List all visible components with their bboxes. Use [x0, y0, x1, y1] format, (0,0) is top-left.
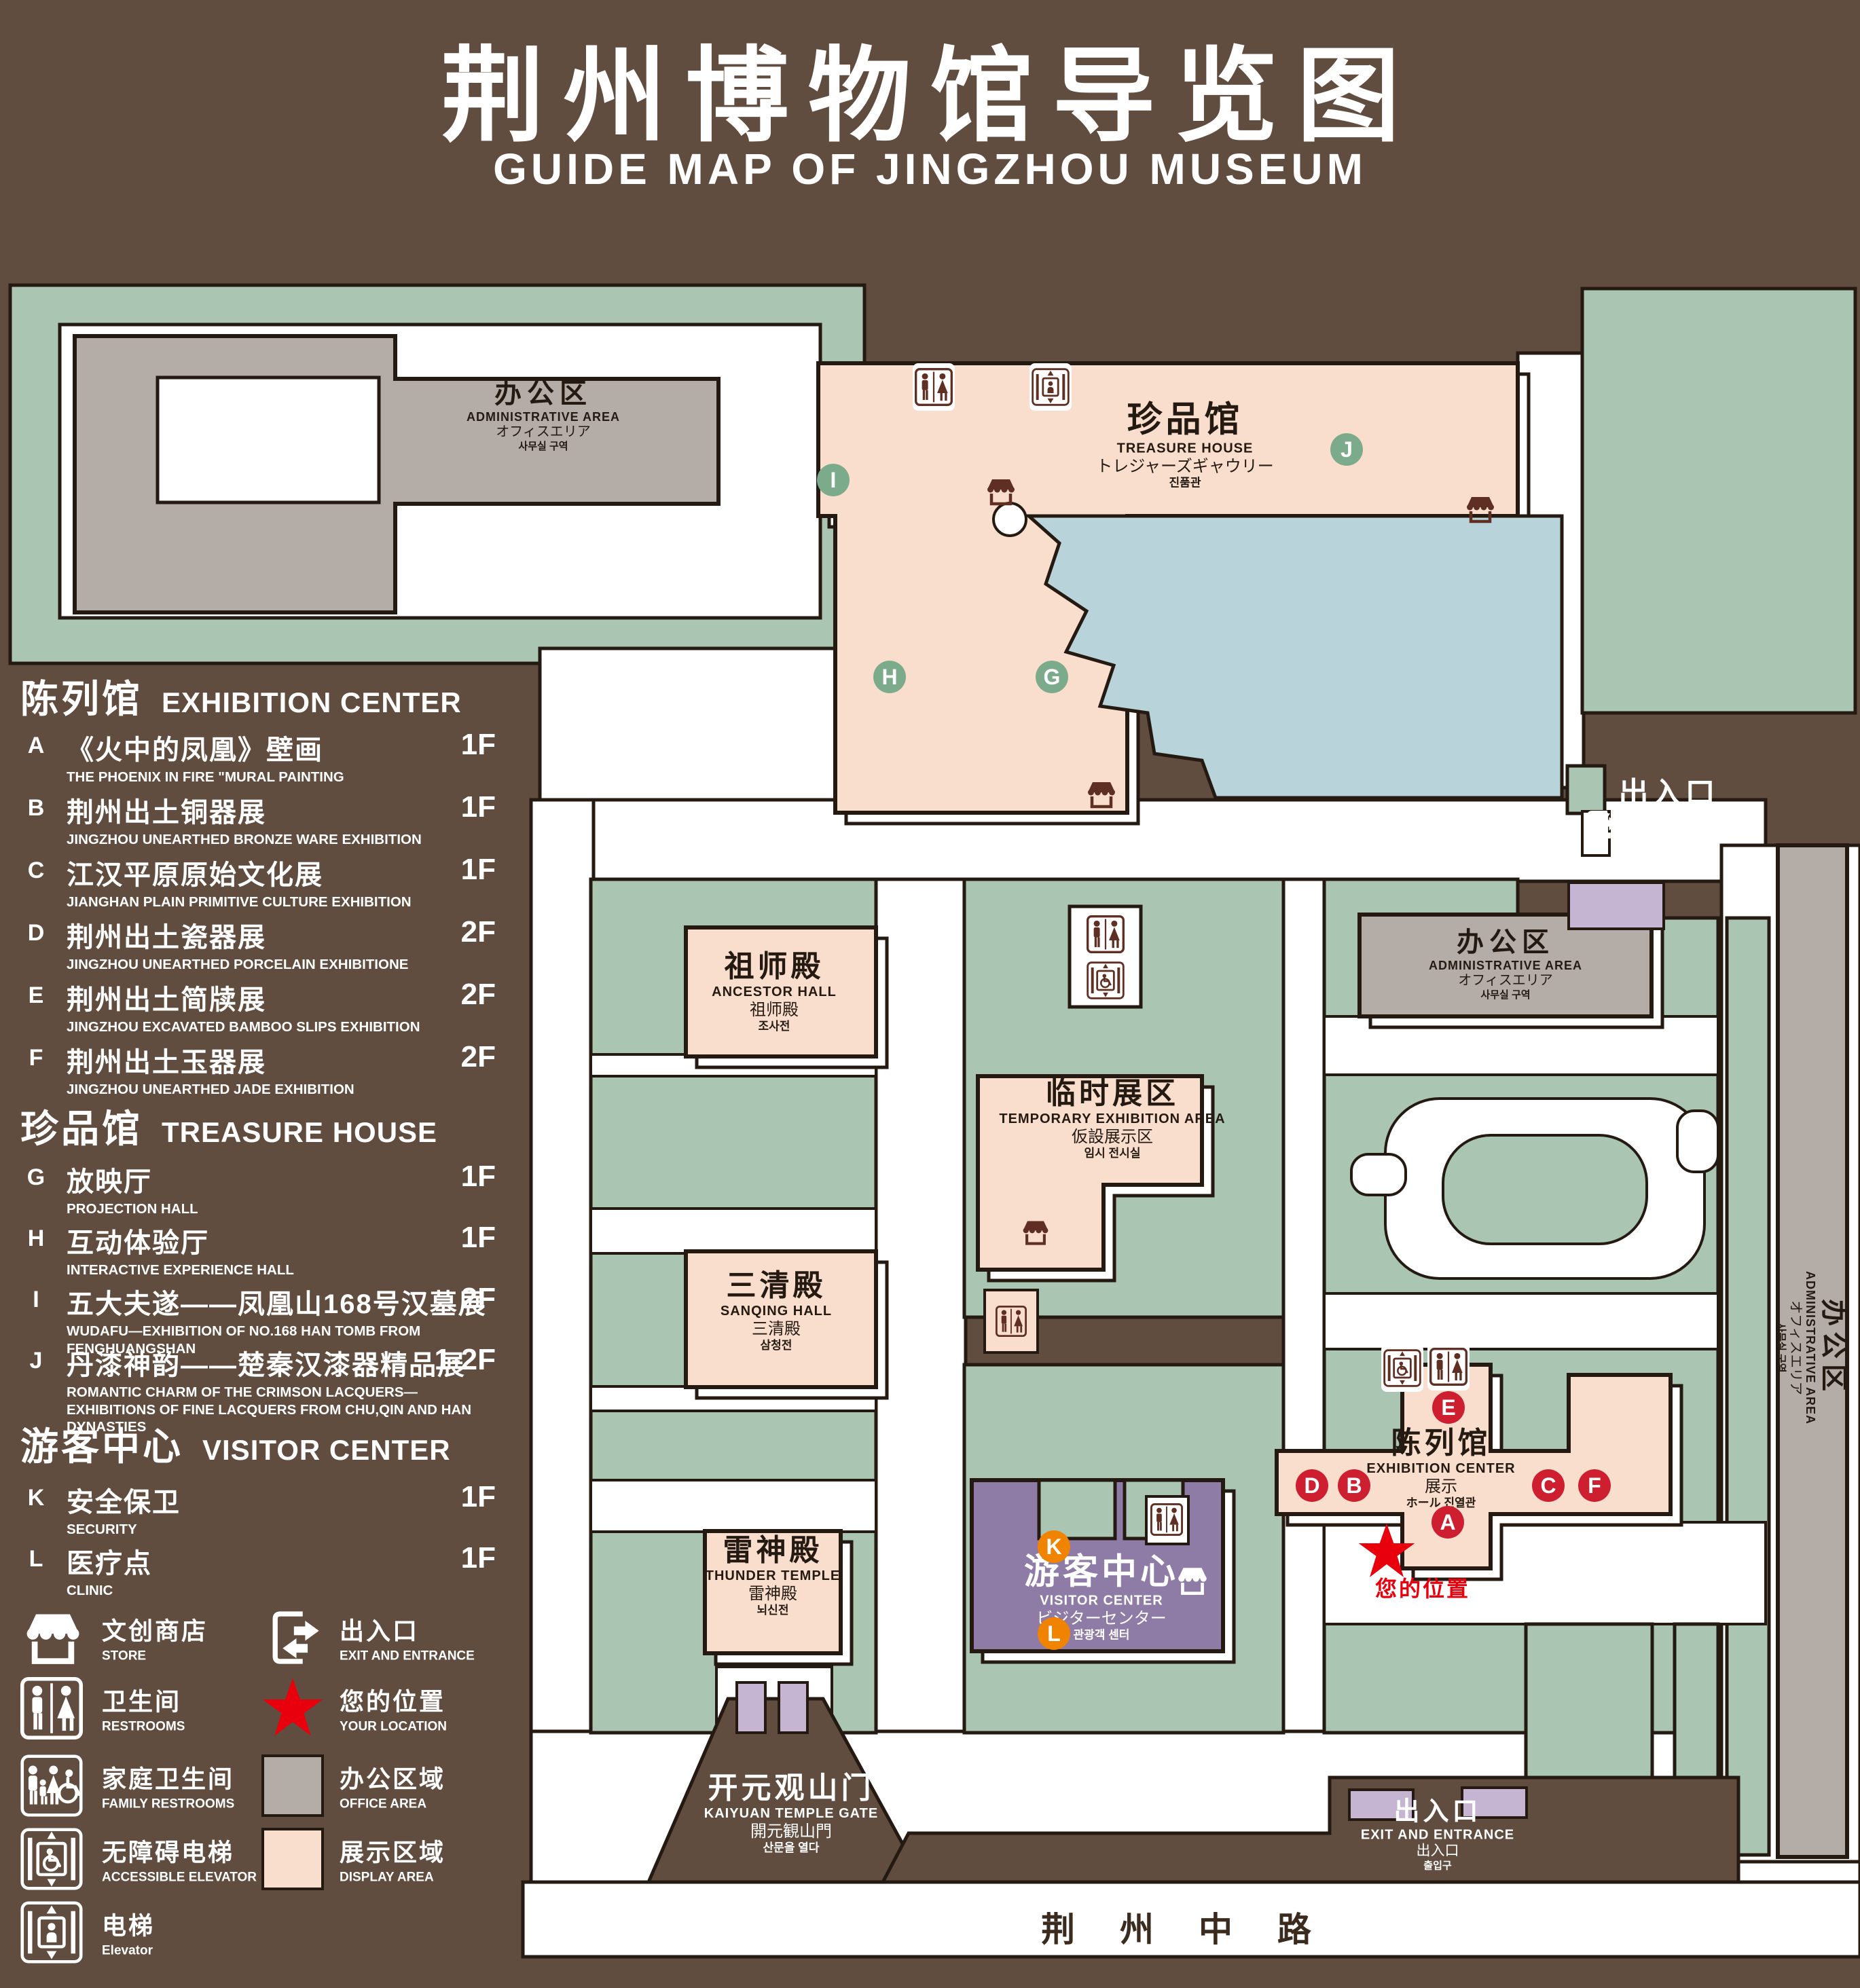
legend-item-b: B荆州出土铜器展JINGZHOU UNEARTHED BRONZE WARE E…: [20, 790, 496, 849]
store-icon: [1019, 1217, 1053, 1248]
gate-building: [779, 1682, 807, 1733]
symbol-title-cn: 无障碍电梯: [102, 1833, 257, 1869]
legend-item-title: 丹漆神韵——楚秦汉漆器精品展: [67, 1343, 496, 1382]
legend-item-subtitle: CLINIC: [67, 1582, 474, 1600]
restroom-icon: [1087, 914, 1125, 955]
label-temporary-exhibition: 临时展区TEMPORARY EXHIBITION AREA 仮設展示区임시 전시…: [999, 1076, 1225, 1160]
legend-item-e: E荆州出土简牍展JINGZHOU EXCAVATED BAMBOO SLIPS …: [20, 978, 496, 1036]
store-icon: [20, 1605, 86, 1670]
store-icon: [1462, 492, 1499, 526]
legend-symbol-label: 展示区域DISPLAY AREA: [340, 1833, 445, 1885]
exit-icon: [1579, 807, 1622, 849]
restroom-icon: [1427, 1343, 1470, 1391]
legend-item-subtitle: JINGZHOU EXCAVATED BAMBOO SLIPS EXHIBITI…: [67, 1018, 474, 1036]
symbol-title-cn: 文创商店: [102, 1612, 208, 1647]
legend-badge-g: G: [20, 1160, 52, 1195]
legend-item-h: H互动体验厅INTERACTIVE EXPERIENCE HALL1F: [20, 1221, 496, 1279]
legend-item-c: C江汉平原原始文化展JIANGHAN PLAIN PRIMITIVE CULTU…: [20, 853, 496, 911]
legend-symbol-label: 您的位置YOUR LOCATION: [340, 1682, 447, 1735]
green-strip-east: [1727, 918, 1769, 1855]
legend-item-subtitle: JINGZHOU UNEARTHED BRONZE WARE EXHIBITIO…: [67, 831, 474, 849]
road-label: 荆 州 中 路: [1041, 1902, 1329, 1951]
legend-item-subtitle: SECURITY: [67, 1521, 474, 1539]
symbol-title-cn: 办公区域: [340, 1760, 445, 1795]
accessible-elevator-icon: [1381, 1344, 1423, 1392]
map-badge-d: D: [1296, 1469, 1328, 1502]
legend-item-title: 互动体验厅: [67, 1221, 496, 1260]
legend-item-floor: 2F: [461, 1040, 496, 1074]
restroom-icon: [913, 363, 955, 411]
legend-item-floor: 2F: [461, 978, 496, 1012]
legend-item-title: 放映厅: [67, 1160, 496, 1199]
location-star-icon: [1357, 1522, 1416, 1581]
legend-badge-f: F: [20, 1040, 52, 1075]
map-badge-e: E: [1432, 1391, 1465, 1424]
exit-icon: [261, 1606, 324, 1669]
symbol-title-en: Elevator: [102, 1944, 155, 1959]
legend-badge-i: I: [20, 1282, 52, 1317]
legend-item-title: 荆州出土瓷器展: [67, 915, 496, 955]
legend-badge-e: E: [20, 978, 52, 1013]
label-kaiyuan-gate: 开元观山门KAIYUAN TEMPLE GATE 開元観山門산문을 열다: [704, 1771, 878, 1855]
legend-item-subtitle: JINGZHOU UNEARTHED PORCELAIN EXHIBITIONE: [67, 956, 474, 974]
family-restroom-icon: [20, 1754, 83, 1817]
symbol-title-cn: 卫生间: [102, 1682, 185, 1718]
legend-item-title: 安全保卫: [67, 1480, 496, 1520]
elevator-icon: [1029, 363, 1072, 411]
label-exhibition-center: 陈列馆EXHIBITION CENTER 展示ホール 진열관: [1366, 1426, 1515, 1510]
legend-item-floor: 1F: [461, 1221, 496, 1255]
legend-item-title: 江汉平原原始文化展: [67, 853, 496, 892]
legend-item-l: L医疗点CLINIC1F: [20, 1541, 496, 1600]
legend-item-floor: 1F: [461, 853, 496, 887]
legend-badge-l: L: [20, 1541, 52, 1577]
path: [591, 1480, 876, 1532]
symbol-title-cn: 出入口: [340, 1612, 475, 1647]
map-badge-g: G: [1036, 661, 1068, 693]
legend-item-subtitle: JIANGHAN PLAIN PRIMITIVE CULTURE EXHIBIT…: [67, 894, 474, 911]
garden-path: [1677, 1111, 1718, 1172]
map-badge-j: J: [1330, 433, 1363, 466]
symbol-title-en: OFFICE AREA: [340, 1797, 445, 1812]
label-exit-south: 出入口EXIT AND ENTRANCE 出入口출입구: [1361, 1797, 1514, 1873]
label-ancestor-hall: 祖师殿ANCESTOR HALL 祖师殿조사전: [712, 949, 837, 1033]
legend-item-subtitle: PROJECTION HALL: [67, 1200, 474, 1218]
map-badge-f: F: [1578, 1469, 1611, 1502]
garden-island: [1443, 1135, 1647, 1244]
legend-item-title: 五大夫遂——凤凰山168号汉墓展: [67, 1282, 496, 1321]
symbol-title-en: FAMILY RESTROOMS: [102, 1797, 234, 1812]
legend-item-floor: 2F: [461, 915, 496, 949]
legend-item-title: 《火中的凤凰》壁画: [67, 728, 496, 767]
map-badge-a: A: [1432, 1506, 1464, 1539]
restroom-icon: [1150, 1501, 1183, 1539]
legend-symbol-label: 办公区域OFFICE AREA: [340, 1760, 445, 1812]
legend-badge-k: K: [20, 1480, 52, 1515]
symbol-title-en: DISPLAY AREA: [340, 1871, 445, 1885]
path: [1283, 879, 1326, 1738]
legend-badge-d: D: [20, 915, 52, 951]
legend-item-k: K安全保卫SECURITY1F: [20, 1480, 496, 1539]
label-thunder-temple: 雷神殿THUNDER TEMPLE 雷神殿뇌신전: [706, 1533, 840, 1617]
path: [1324, 1293, 1718, 1349]
symbol-title-en: ACCESSIBLE ELEVATOR: [102, 1871, 257, 1885]
gate-building: [737, 1682, 765, 1733]
map-badge-l: L: [1038, 1617, 1070, 1650]
legend-symbol-label: 文创商店STORE: [102, 1612, 208, 1664]
section-title-en: TREASURE HOUSE: [162, 1116, 437, 1148]
label-admin-east: 办公区ADMINISTRATIVE AREA オフィスエリア사무실 구역: [1774, 1271, 1849, 1424]
legend-item-floor: 1F: [461, 1160, 496, 1194]
section-title-cn: 游客中心: [20, 1425, 183, 1468]
map-badge-c: C: [1532, 1469, 1565, 1502]
symbol-title-en: RESTROOMS: [102, 1720, 185, 1735]
store-icon: [1083, 777, 1120, 811]
label-sanqing-hall: 三清殿SANQING HALL 三清殿삼청전: [721, 1268, 832, 1352]
symbol-title-cn: 您的位置: [340, 1682, 447, 1718]
display-area-swatch: [261, 1828, 324, 1890]
legend-item-floor: 2F: [461, 1282, 496, 1316]
legend-item-floor: 1-2F: [435, 1343, 496, 1377]
legend-item-title: 医疗点: [67, 1541, 496, 1581]
legend-item-subtitle: INTERACTIVE EXPERIENCE HALL: [67, 1262, 474, 1279]
label-admin-mid: 办公区ADMINISTRATIVE AREA オフィスエリア사무실 구역: [1429, 927, 1582, 1001]
path: [591, 1209, 876, 1253]
legend-item-title: 荆州出土铜器展: [67, 790, 496, 830]
legend-symbol-label: 家庭卫生间FAMILY RESTROOMS: [102, 1760, 234, 1812]
legend-badge-c: C: [20, 853, 52, 888]
symbol-title-cn: 电梯: [102, 1907, 155, 1942]
symbol-title-cn: 展示区域: [340, 1833, 445, 1869]
guide-map-poster: 荆州博物馆导览图 GUIDE MAP OF JINGZHOU MUSEUM: [0, 0, 1860, 1988]
location-star-icon: [261, 1677, 324, 1739]
map-badge-i: I: [817, 464, 850, 496]
garden-path: [1351, 1154, 1406, 1195]
green-notch: [1039, 1480, 1115, 1539]
store-icon: [1173, 1563, 1211, 1598]
path: [531, 800, 594, 1882]
legend-item-floor: 1F: [461, 790, 496, 824]
legend-item-title: 荆州出土简牍展: [67, 978, 496, 1017]
section-title-en: EXHIBITION CENTER: [162, 686, 462, 718]
legend-badge-j: J: [20, 1343, 52, 1378]
symbol-title-en: EXIT AND ENTRANCE: [340, 1649, 475, 1664]
legend-section-header: 珍品馆TREASURE HOUSE: [20, 1099, 437, 1154]
legend-symbol-label: 出入口EXIT AND ENTRANCE: [340, 1612, 475, 1664]
elevator-icon: [20, 1901, 83, 1964]
legend-symbol-label: 卫生间RESTROOMS: [102, 1682, 185, 1735]
store-icon: [983, 475, 1019, 509]
legend-item-a: A《火中的凤凰》壁画THE PHOENIX IN FIRE "MURAL PAI…: [20, 728, 496, 786]
accessible-elevator-icon: [1087, 960, 1125, 1001]
symbol-title-en: STORE: [102, 1649, 208, 1664]
legend-panel: 陈列馆EXHIBITION CENTERA《火中的凤凰》壁画THE PHOENI…: [0, 0, 536, 1988]
legend-badge-h: H: [20, 1221, 52, 1256]
legend-badge-b: B: [20, 790, 52, 826]
legend-item-f: F荆州出土玉器展JINGZHOU UNEARTHED JADE EXHIBITI…: [20, 1040, 496, 1099]
section-title-cn: 珍品馆: [20, 1107, 143, 1150]
legend-item-g: G放映厅PROJECTION HALL1F: [20, 1160, 496, 1218]
legend-badge-a: A: [20, 728, 52, 763]
gate-building: [1569, 883, 1664, 929]
legend-item-d: D荆州出土瓷器展JINGZHOU UNEARTHED PORCELAIN EXH…: [20, 915, 496, 974]
symbol-title-en: YOUR LOCATION: [340, 1720, 447, 1735]
symbol-title-cn: 家庭卫生间: [102, 1760, 234, 1795]
legend-item-floor: 1F: [461, 728, 496, 762]
restroom-icon: [996, 1304, 1027, 1338]
accessible-elevator-icon: [20, 1828, 83, 1890]
section-title-en: VISITOR CENTER: [202, 1434, 451, 1466]
map-badge-b: B: [1338, 1469, 1370, 1502]
restroom-icon: [20, 1677, 83, 1739]
green-area-ne: [1582, 289, 1855, 713]
map-badge-h: H: [873, 661, 906, 693]
legend-item-floor: 1F: [461, 1480, 496, 1514]
legend-section-header: 游客中心VISITOR CENTER: [20, 1416, 451, 1471]
label-treasure-house: 珍品馆TREASURE HOUSE トレジャーズギャウリー진품관: [1096, 399, 1274, 490]
path: [876, 879, 966, 1738]
legend-symbol-label: 电梯Elevator: [102, 1907, 155, 1959]
map-badge-k: K: [1038, 1530, 1070, 1563]
legend-section-header: 陈列馆EXHIBITION CENTER: [20, 669, 462, 724]
legend-item-floor: 1F: [461, 1541, 496, 1575]
section-title-cn: 陈列馆: [20, 678, 143, 720]
legend-item-subtitle: JINGZHOU UNEARTHED JADE EXHIBITION: [67, 1081, 474, 1099]
office-area-swatch: [261, 1754, 324, 1817]
legend-item-subtitle: THE PHOENIX IN FIRE "MURAL PAINTING: [67, 769, 474, 786]
legend-symbol-label: 无障碍电梯ACCESSIBLE ELEVATOR: [102, 1833, 257, 1885]
legend-item-title: 荆州出土玉器展: [67, 1040, 496, 1080]
